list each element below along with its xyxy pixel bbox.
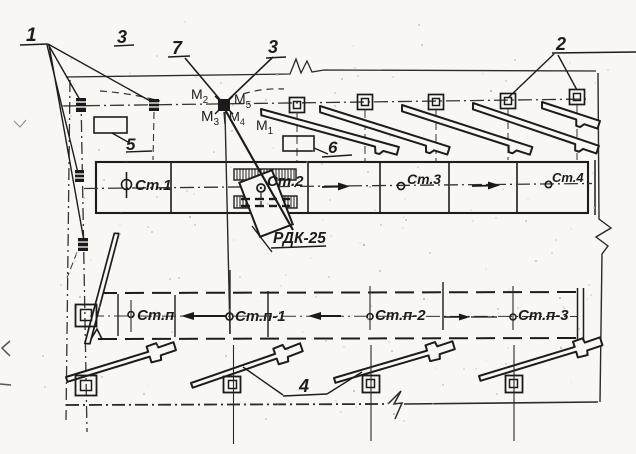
svg-text:Ст.4: Ст.4 <box>552 170 584 185</box>
svg-text:3: 3 <box>268 37 278 57</box>
svg-text:РДК-25: РДК-25 <box>273 230 326 247</box>
svg-text:Ст.2: Ст.2 <box>267 173 304 190</box>
svg-text:2: 2 <box>555 34 566 54</box>
svg-text:7: 7 <box>172 38 183 58</box>
svg-text:Ст.п-3: Ст.п-3 <box>518 307 569 324</box>
svg-text:1: 1 <box>26 25 37 46</box>
svg-text:3: 3 <box>117 27 127 47</box>
svg-text:Ст.3: Ст.3 <box>407 171 441 187</box>
svg-text:6: 6 <box>328 138 338 157</box>
svg-text:Ст.п-1: Ст.п-1 <box>235 308 286 325</box>
svg-text:4: 4 <box>298 376 309 396</box>
svg-text:Ст.п: Ст.п <box>137 307 174 324</box>
svg-text:Ст.1: Ст.1 <box>135 177 171 194</box>
svg-text:Ст.п-2: Ст.п-2 <box>375 307 426 324</box>
